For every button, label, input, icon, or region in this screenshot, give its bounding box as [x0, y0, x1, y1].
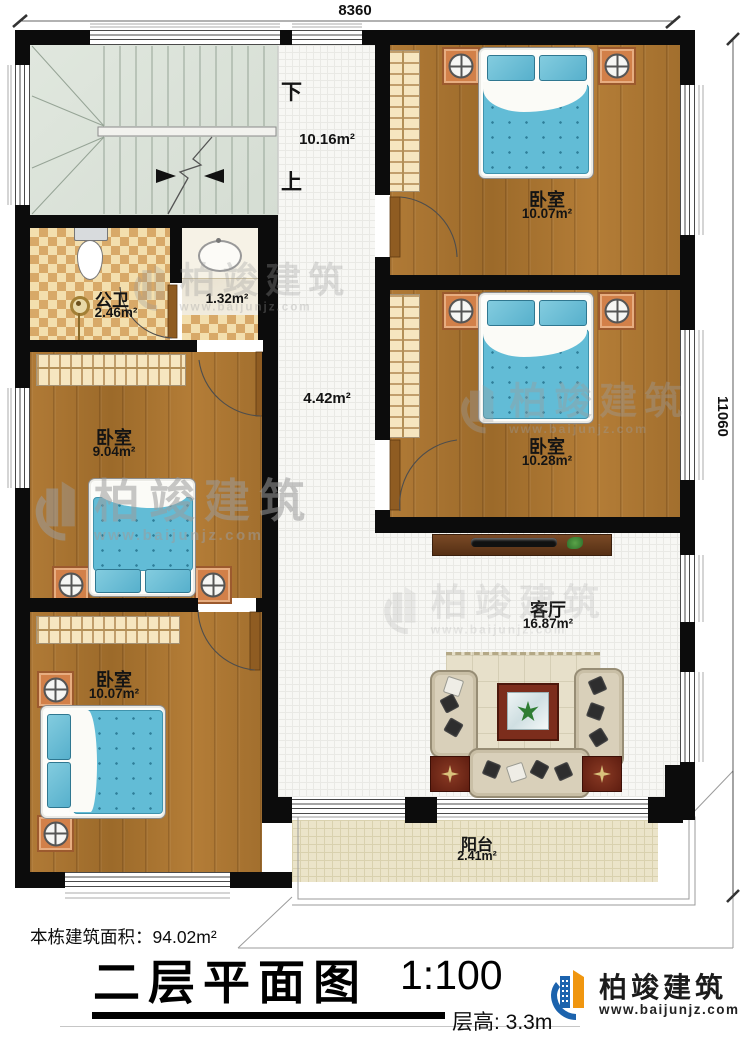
wall-segment: [262, 598, 278, 797]
floor-height-text: 层高: 3.3m: [452, 1006, 552, 1036]
double-bed: [40, 705, 166, 819]
nightstand: [194, 566, 232, 604]
nightstand: [442, 47, 480, 85]
double-bed: [478, 292, 594, 424]
window: [292, 30, 362, 45]
lamp-icon: [449, 299, 474, 324]
room-area-bedroom-tr: 10.07m²: [522, 206, 572, 221]
sofa-two-seat: [430, 670, 478, 758]
plant-icon: [567, 537, 583, 549]
window: [65, 872, 230, 888]
dimension-right: 11060: [714, 396, 731, 437]
wall-segment: [375, 275, 680, 290]
lamp-icon: [449, 54, 474, 79]
wall-segment: [15, 598, 198, 612]
wardrobe: [388, 294, 420, 438]
wall-segment: [362, 30, 375, 45]
wall-segment: [680, 30, 695, 85]
company-name: 柏竣建筑: [599, 973, 740, 1002]
wall-segment: [230, 872, 292, 888]
room-area-bedroom-ml: 9.04m²: [93, 444, 136, 459]
wardrobe: [36, 354, 186, 386]
nightstand: [442, 292, 480, 330]
wardrobe: [388, 50, 420, 192]
wall-segment: [15, 215, 278, 228]
wall-segment: [262, 797, 292, 823]
double-bed: [478, 47, 594, 179]
sliding-door: [292, 799, 405, 815]
nightstand: [598, 47, 636, 85]
wall-segment: [680, 622, 695, 672]
side-table: [582, 756, 622, 792]
dimension-top: 8360: [338, 2, 371, 19]
lamp-icon: [43, 821, 68, 846]
room-area-balcony: 2.41m²: [457, 849, 497, 863]
wall-segment: [375, 45, 390, 195]
company-logo-icon: [546, 968, 592, 1022]
room-area-bedroom-mr: 10.28m²: [522, 453, 572, 468]
window: [15, 65, 30, 205]
plan-scale: 1:100: [400, 952, 503, 999]
window: [680, 85, 695, 235]
wall-segment: [375, 517, 680, 533]
nightstand: [598, 292, 636, 330]
title-underline: [92, 1012, 445, 1019]
stair-up-label: 上: [281, 166, 302, 196]
lamp-icon: [201, 573, 226, 598]
wall-segment: [15, 30, 30, 65]
wall-segment: [665, 765, 680, 800]
window: [680, 672, 695, 762]
stair-hall-area: 10.16m²: [299, 131, 355, 148]
company-website: www.baijunjz.com: [599, 1002, 740, 1017]
side-table: [430, 756, 470, 792]
room-area-bathroom: 2.46m²: [95, 305, 138, 320]
wall-segment: [170, 215, 182, 283]
room-area-living: 16.87m²: [523, 616, 573, 631]
window: [680, 555, 695, 622]
wall-segment: [15, 205, 30, 388]
plan-title: 二层平面图: [93, 944, 368, 1013]
toilet: [74, 226, 106, 282]
wall-segment: [262, 352, 278, 598]
window: [15, 388, 30, 488]
washbasin: [182, 228, 258, 278]
window: [680, 330, 695, 480]
lamp-icon: [43, 677, 68, 702]
wall-segment: [680, 235, 695, 330]
nightstand: [37, 671, 74, 708]
wall-segment: [15, 340, 197, 352]
lamp-icon: [59, 573, 84, 598]
wall-segment: [258, 215, 278, 340]
window: [90, 30, 280, 45]
lamp-icon: [605, 54, 630, 79]
wall-segment: [375, 30, 685, 45]
room-area-bedroom-bl: 10.07m²: [89, 686, 139, 701]
sofa-three-seat: [468, 748, 590, 798]
tv-icon: [471, 538, 557, 547]
star-inlay-icon: [593, 765, 611, 783]
star-inlay-icon: [441, 765, 459, 783]
wall-segment: [15, 488, 30, 888]
company-logo: 柏竣建筑 www.baijunjz.com: [546, 968, 740, 1022]
floor-plan-page: 下 上 10.16m² 4.42m² 公卫 2.46m² 1.32m² 卧室 1…: [0, 0, 750, 1037]
wall-segment: [15, 872, 65, 888]
wall-segment: [280, 30, 292, 45]
nightstand: [37, 815, 74, 852]
tv-cabinet: [432, 534, 612, 556]
stair-down-label: 下: [281, 76, 302, 106]
double-bed: [88, 478, 196, 597]
coffee-table: [497, 683, 559, 741]
wall-segment: [263, 340, 278, 352]
floor-drain-icon: [70, 296, 88, 344]
room-area-washroom: 1.32m²: [206, 291, 249, 306]
wall-segment: [405, 797, 437, 823]
wardrobe: [36, 616, 180, 644]
sliding-door: [437, 799, 648, 815]
lamp-icon: [605, 299, 630, 324]
corridor-area: 4.42m²: [303, 390, 351, 407]
wall-segment: [648, 797, 683, 823]
wall-segment: [680, 480, 695, 555]
